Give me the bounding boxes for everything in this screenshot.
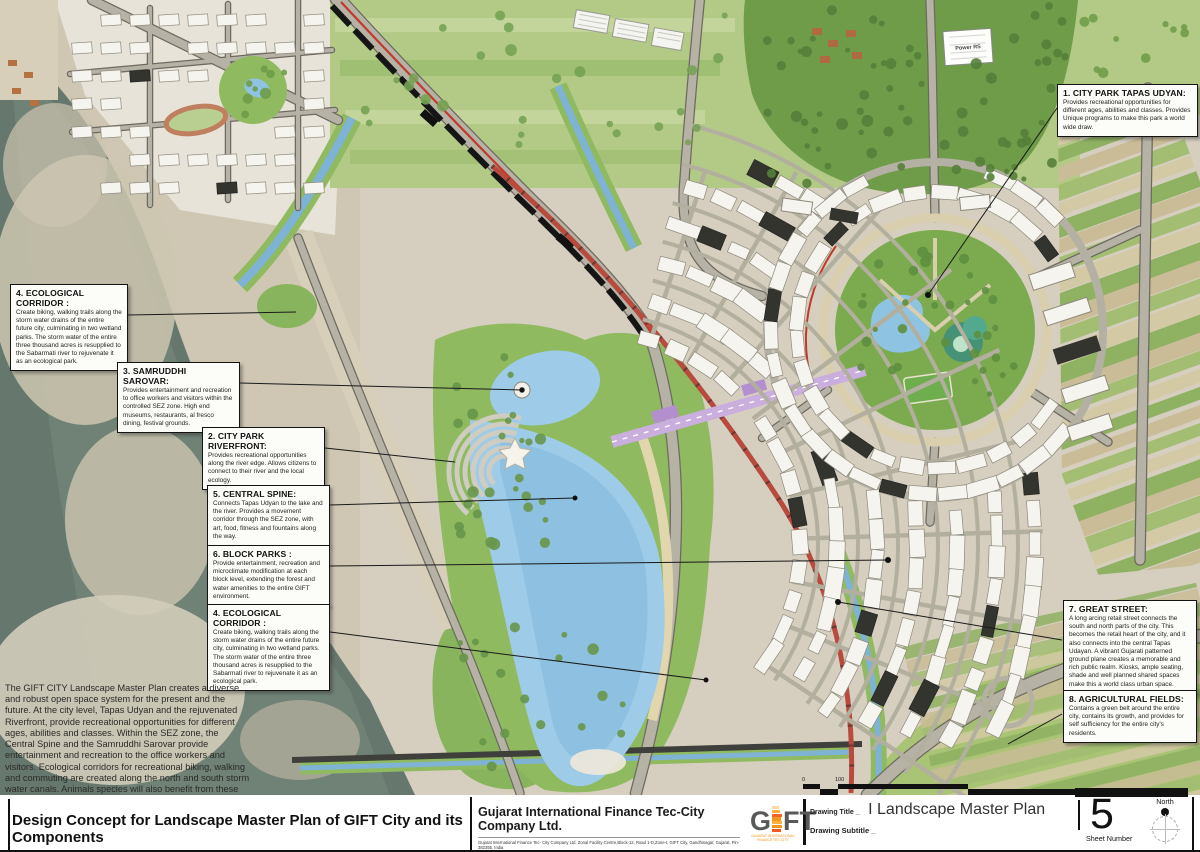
callout-samruddhi-sarovar: 3. SAMRUDDHI SAROVAR: Provides entertain… — [117, 362, 240, 433]
company-address: Gujarat International Finance Tec- City … — [478, 837, 740, 850]
callout-body: Connects Tapas Udyan to the lake and the… — [213, 500, 324, 541]
drawing-subtitle-label: Drawing Subtitle _ — [810, 826, 1070, 835]
callout-body: Provides entertainment and recreation to… — [123, 387, 234, 428]
company-block: Gujarat International Finance Tec-City C… — [478, 805, 740, 850]
north-indicator: North — [1140, 797, 1190, 842]
callout-city-park-riverfront: 2. CITY PARK RIVERFRONT: Provides recrea… — [202, 427, 325, 490]
plan-sheet: Power RS 1. CITY PARK TAPAS UDYAN: Provi… — [0, 0, 1200, 852]
callout-body: Create biking, walking trails along the … — [213, 629, 324, 686]
callout-body: Provides recreational opportunities alon… — [208, 452, 319, 485]
callout-agricultural-fields: 8. AGRICULTURAL FIELDS: Contains a green… — [1063, 690, 1197, 743]
logo-subtext-2: FINANCE TEC-CITY — [750, 838, 796, 842]
callout-title: 2. CITY PARK RIVERFRONT: — [208, 431, 319, 451]
sheet-number-label: Sheet Number — [1082, 834, 1138, 843]
callout-title: 4. ECOLOGICAL CORRIDOR : — [213, 608, 324, 628]
callout-title: 4. ECOLOGICAL CORRIDOR : — [16, 288, 122, 308]
callout-title: 3. SAMRUDDHI SAROVAR: — [123, 366, 234, 386]
logo-bars-icon — [772, 806, 782, 832]
callout-title: 7. GREAT STREET: — [1069, 604, 1191, 614]
sheet-title: Design Concept for Landscape Master Plan… — [12, 812, 464, 846]
gift-logo: G FT GUJARAT INTERNATIONAL FINANCE TEC-C… — [750, 803, 796, 845]
logo-letter-g: G — [750, 809, 771, 833]
wetland-park-north — [257, 284, 317, 328]
company-name: Gujarat International Finance Tec-City C… — [478, 805, 740, 833]
callout-body: Provides recreational opportunities for … — [1063, 99, 1192, 132]
drawing-title-block: Drawing Title _ I Landscape Master Plan … — [810, 801, 1070, 835]
callout-ecological-corridor-south: 4. ECOLOGICAL CORRIDOR : Create biking, … — [207, 604, 330, 691]
callout-great-street: 7. GREAT STREET: A long arcing retail st… — [1063, 600, 1197, 694]
callout-title: 8. AGRICULTURAL FIELDS: — [1069, 694, 1191, 704]
callout-body: Contains a green belt around the entire … — [1069, 705, 1191, 738]
callout-block-parks: 6. BLOCK PARKS : Provide entertainment, … — [207, 545, 330, 606]
callout-city-park-tapas-udyan: 1. CITY PARK TAPAS UDYAN: Provides recre… — [1057, 84, 1198, 137]
title-block: Design Concept for Landscape Master Plan… — [0, 795, 1200, 852]
callout-ecological-corridor-north: 4. ECOLOGICAL CORRIDOR : Create biking, … — [10, 284, 128, 371]
callout-body: A long arcing retail street connects the… — [1069, 615, 1191, 689]
scale-label-0: 0 — [802, 777, 805, 783]
callout-body: Create biking, walking trails along the … — [16, 309, 122, 366]
north-crosshair-icon — [1152, 816, 1178, 842]
callout-central-spine: 5. CENTRAL SPINE: Connects Tapas Udyan t… — [207, 485, 330, 546]
drawing-title-label: Drawing Title _ — [810, 809, 860, 816]
callout-title: 6. BLOCK PARKS : — [213, 549, 324, 559]
power-substation: Power RS — [943, 28, 993, 65]
drawing-title: I Landscape Master Plan — [868, 801, 1045, 819]
callout-title: 5. CENTRAL SPINE: — [213, 489, 324, 499]
sheet-number: 5 — [1082, 793, 1138, 836]
scale-label-100: 100 — [835, 777, 844, 783]
callout-title: 1. CITY PARK TAPAS UDYAN: — [1063, 88, 1192, 98]
sheet-number-block: 5 Sheet Number — [1082, 793, 1138, 843]
callout-body: Provide entertainment, recreation and mi… — [213, 560, 324, 601]
north-label: North — [1140, 797, 1190, 806]
